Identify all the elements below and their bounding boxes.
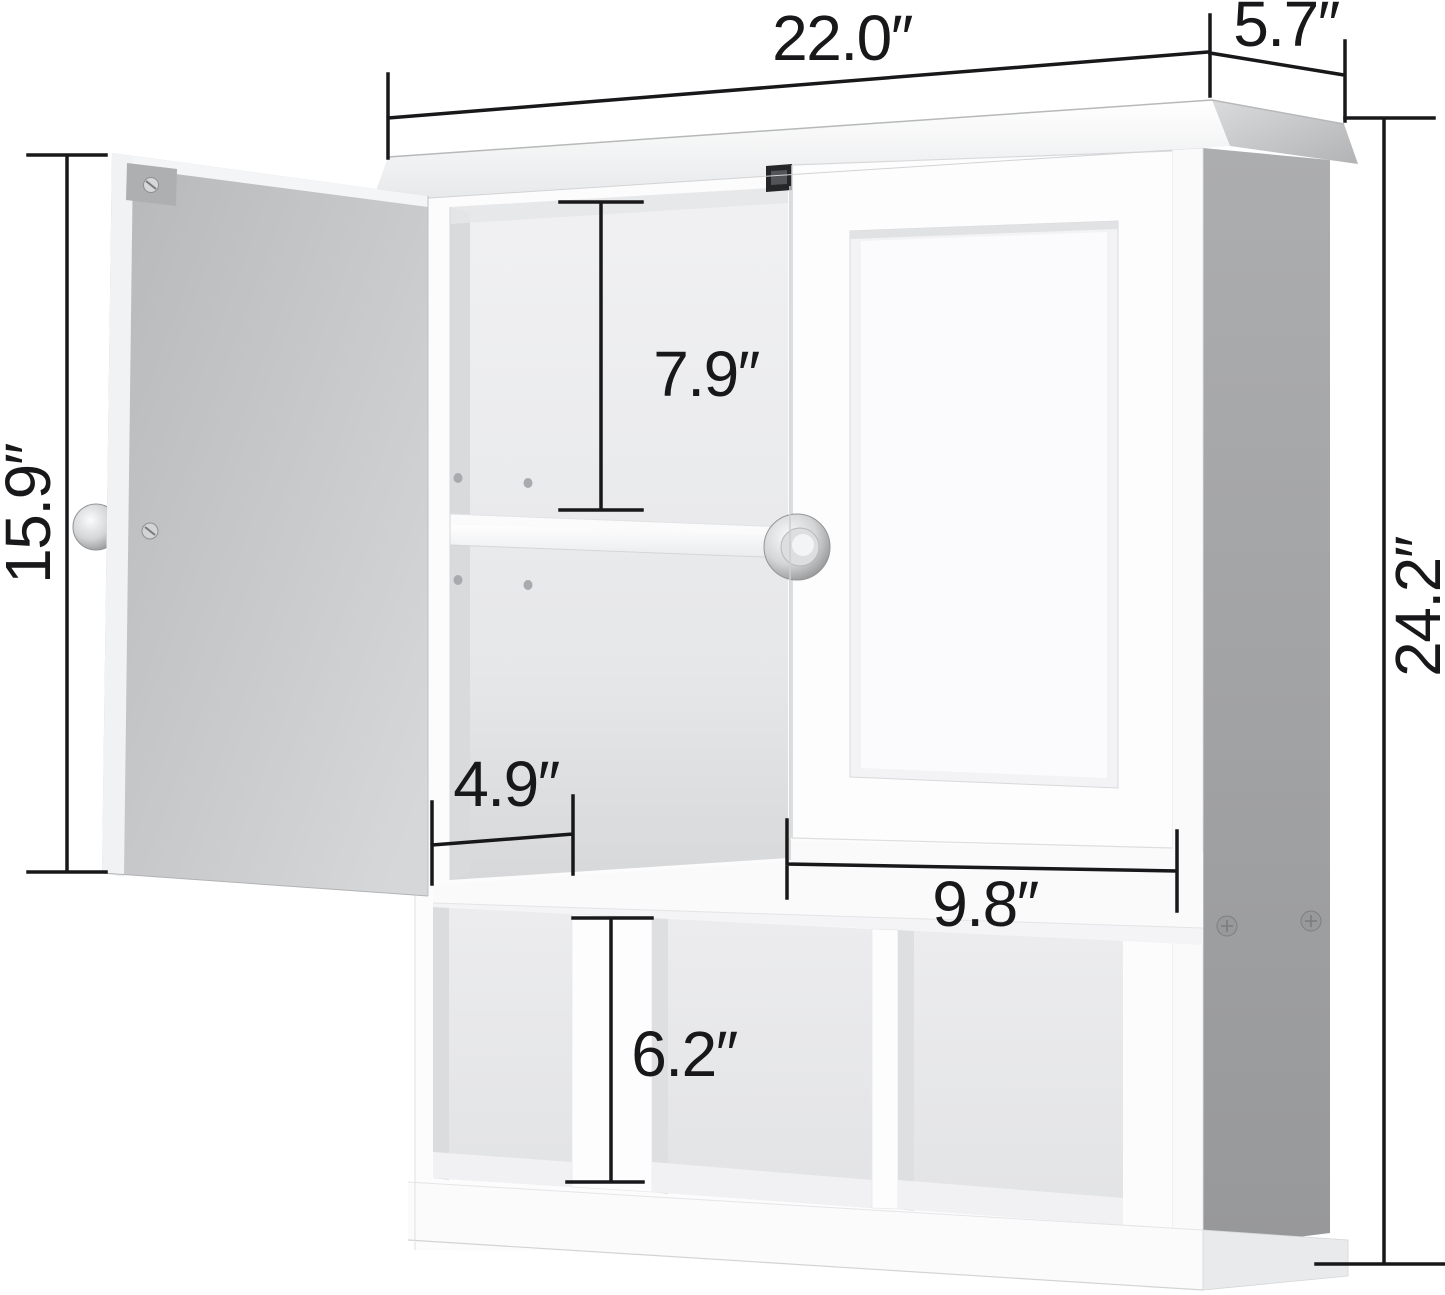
- open-door-knob-screw: [142, 523, 158, 539]
- dim-shelf-depth-label: 4.9″: [453, 748, 559, 820]
- product-image: 22.0″ 5.7″ 24.2″ 15.9″ 7.9″ 4.9″ 9.8″ 6: [0, 0, 1445, 1295]
- cabinet-dimension-diagram: 22.0″ 5.7″ 24.2″ 15.9″ 7.9″ 4.9″ 9.8″ 6: [0, 0, 1445, 1295]
- front-right-stile: [1172, 148, 1203, 1252]
- dim-top-depth-label: 5.7″: [1233, 0, 1339, 60]
- dim-upper-space-label: 7.9″: [653, 338, 759, 410]
- open-door: [73, 153, 428, 896]
- dim-door-height-label: 15.9″: [0, 443, 64, 584]
- dim-door-width-label: 9.8″: [932, 868, 1038, 940]
- shaker-panel: [861, 232, 1107, 778]
- plinth-side: [1203, 1230, 1348, 1290]
- cubby-1: [433, 907, 572, 1187]
- dim-overall-width-label: 22.0″: [772, 2, 913, 74]
- open-door-hinge-plate: [126, 163, 177, 206]
- cubby-divider-2: [872, 929, 898, 1209]
- dim-overall-height: 24.2″: [1316, 118, 1445, 1264]
- dim-overall-height-label: 24.2″: [1382, 536, 1445, 677]
- side-panel: [1203, 148, 1330, 1249]
- dim-cubby-height-label: 6.2″: [631, 1018, 737, 1090]
- cubby-3-left-shade: [898, 930, 914, 1211]
- magnetic-catch: [766, 164, 792, 192]
- cabinet: [73, 100, 1358, 1290]
- right-door: [764, 151, 1172, 848]
- cubby-1-left-shade: [433, 907, 449, 1180]
- right-door-knob: [764, 514, 830, 580]
- cubby-3: [898, 930, 1123, 1225]
